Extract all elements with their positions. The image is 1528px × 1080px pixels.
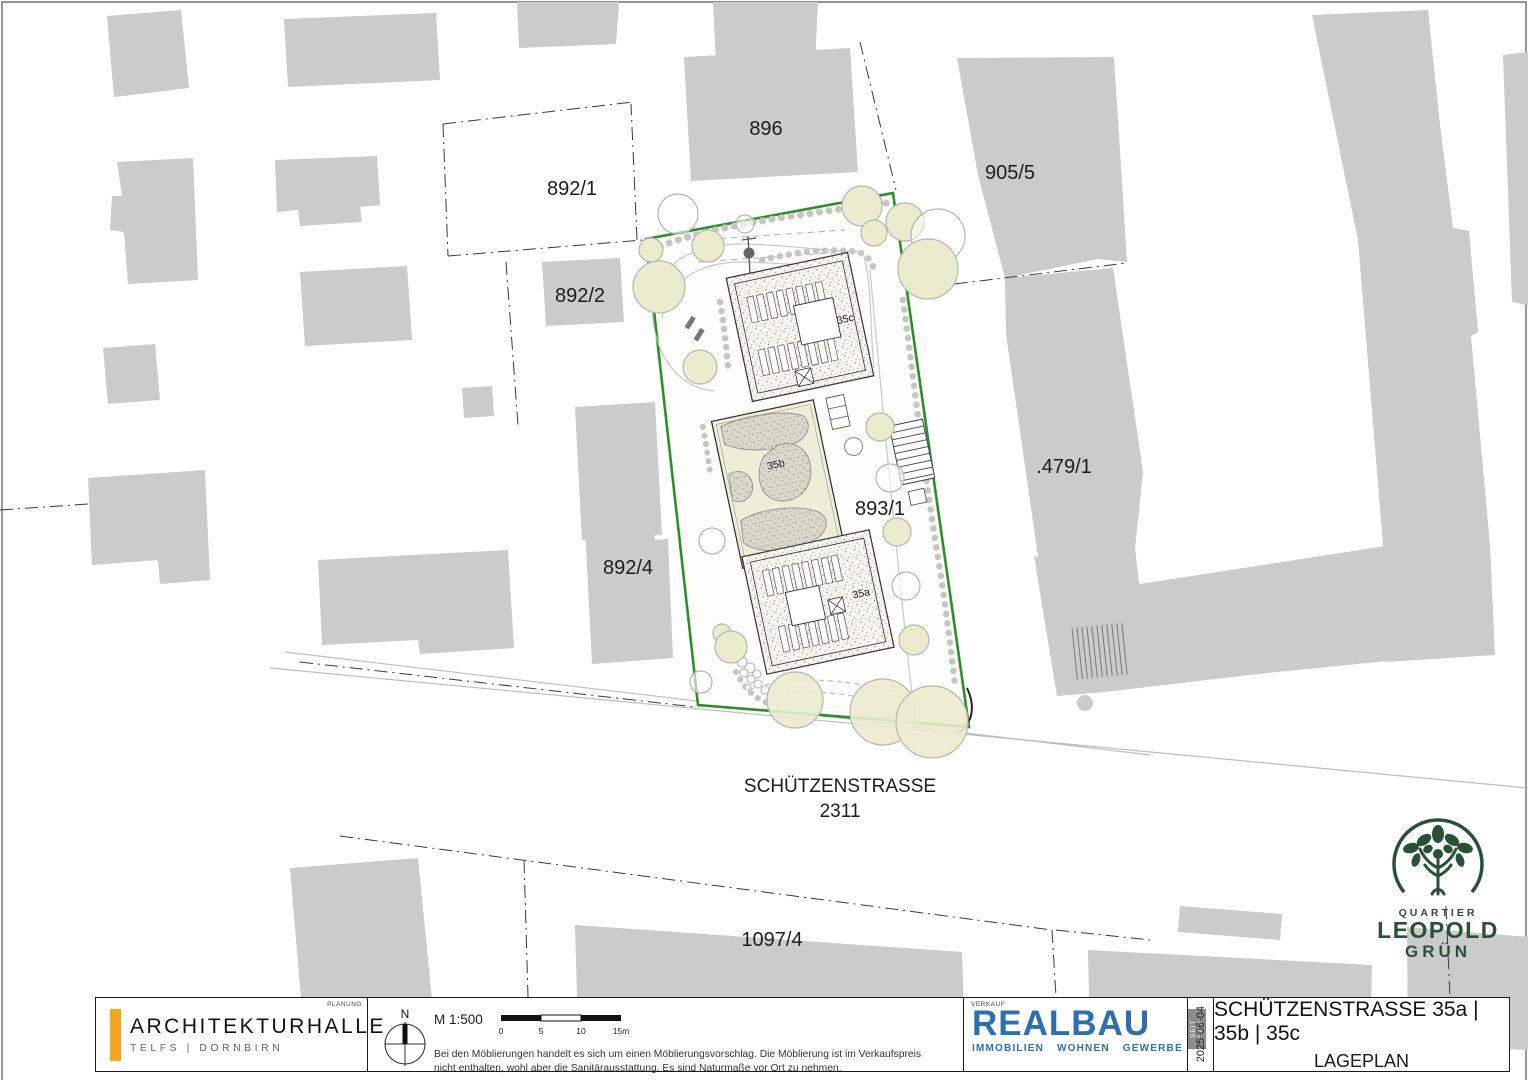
disclaimer-line-1: Bei den Möblierungen handelt es sich um … [434,1048,921,1062]
context-building [575,402,662,540]
sheet-title-section: SCHÜTZENSTRASSE 35a | 35b | 35c LAGEPLAN [1213,998,1509,1071]
disclaimer-line-2: nicht enthalten, wohl aber die Sanitärau… [434,1062,921,1076]
parcel-label-896: 896 [749,118,782,140]
parcel-label-1097-4: 1097/4 [741,929,802,951]
parcel-label-892-4: 892/4 [603,557,653,579]
north-arrow-icon: N [376,1006,434,1072]
sales-section: VERKAUF REALBAU IMMOBILIEN WOHNEN GEWERB… [963,998,1187,1071]
realbau-logo-text: REALBAU [972,1009,1183,1039]
street-name-label: SCHÜTZENSTRASSE [744,776,936,797]
logo-text-leopold: LEOPOLD [1372,919,1504,942]
parcel-label-905-5: 905/5 [985,162,1035,184]
scale-bar: 0 5 10 15m [497,1012,677,1038]
title-block: PLANUNG ARCHITEKTURHALLE TELFS | DORNBIR… [95,997,1510,1072]
architect-logo-bar [110,1009,121,1061]
context-building [275,156,380,226]
lageplan-sheet: { "plan": { "parcels": { "p892_1": "892/… [0,0,1528,1080]
context-building [1503,52,1528,305]
context-building [318,550,514,654]
context-building [290,858,432,1010]
scale-tick-15: 15m [613,1026,630,1036]
architect-section: PLANUNG ARCHITEKTURHALLE TELFS | DORNBIR… [96,998,367,1071]
context-building [107,10,189,97]
context-building [110,158,198,284]
architect-name: ARCHITEKTURHALLE [130,1015,386,1039]
north-label: N [401,1007,410,1021]
building-479-left-wing [1005,268,1143,592]
planning-caption: PLANUNG [327,1001,362,1008]
context-building [517,2,619,48]
parcel-label-892-1: 892/1 [547,178,597,200]
context-building [1077,695,1093,711]
architect-locations: TELFS | DORNBIRN [130,1042,386,1054]
context-building [1178,906,1282,940]
sheet-subtitle: LAGEPLAN [1314,1051,1409,1072]
context-building [88,470,210,584]
logo-text-gruen: GRÜN [1372,942,1504,962]
plan-date: 2025-06-04 [1195,1006,1207,1062]
building-892-4 [585,522,673,664]
building-905-5 [957,57,1127,278]
realbau-sub-wohnen: WOHNEN [1057,1043,1110,1054]
logo-tree-icon [1372,812,1504,914]
sales-caption: VERKAUF [971,1001,1005,1008]
scale-tick-5: 5 [538,1026,543,1036]
parcel-label-892-2: 892/2 [555,285,605,307]
parcel-label-479-1: .479/1 [1036,456,1092,478]
date-section: 2025-06-04 [1187,998,1213,1071]
building-35a: 35a [742,530,894,674]
site-plan-canvas: 35c 35b [0,0,1528,1080]
context-building [462,386,494,418]
building-35c: 35c [726,252,873,401]
context-building [103,344,160,404]
realbau-sub-immobilien: IMMOBILIEN [972,1043,1044,1054]
plan-info-section: N M 1:500 0 5 10 15m [367,998,963,1071]
quartier-leopold-gruen-logo: QUARTIER LEOPOLD GRÜN [1372,812,1504,962]
scale-tick-0: 0 [498,1026,503,1036]
realbau-sub-gewerbe: GEWERBE [1123,1043,1183,1054]
street-parcel-label: 2311 [820,801,861,822]
context-building [300,266,412,346]
street-label-group: SCHÜTZENSTRASSE 2311 [744,776,936,822]
building-896 [684,48,858,181]
context-building [284,13,440,87]
parcel-label-893-1: 893/1 [855,498,905,520]
sheet-title: SCHÜTZENSTRASSE 35a | 35b | 35c [1214,998,1509,1046]
scale-tick-10: 10 [576,1026,586,1036]
scale-label: M 1:500 [434,1012,483,1027]
